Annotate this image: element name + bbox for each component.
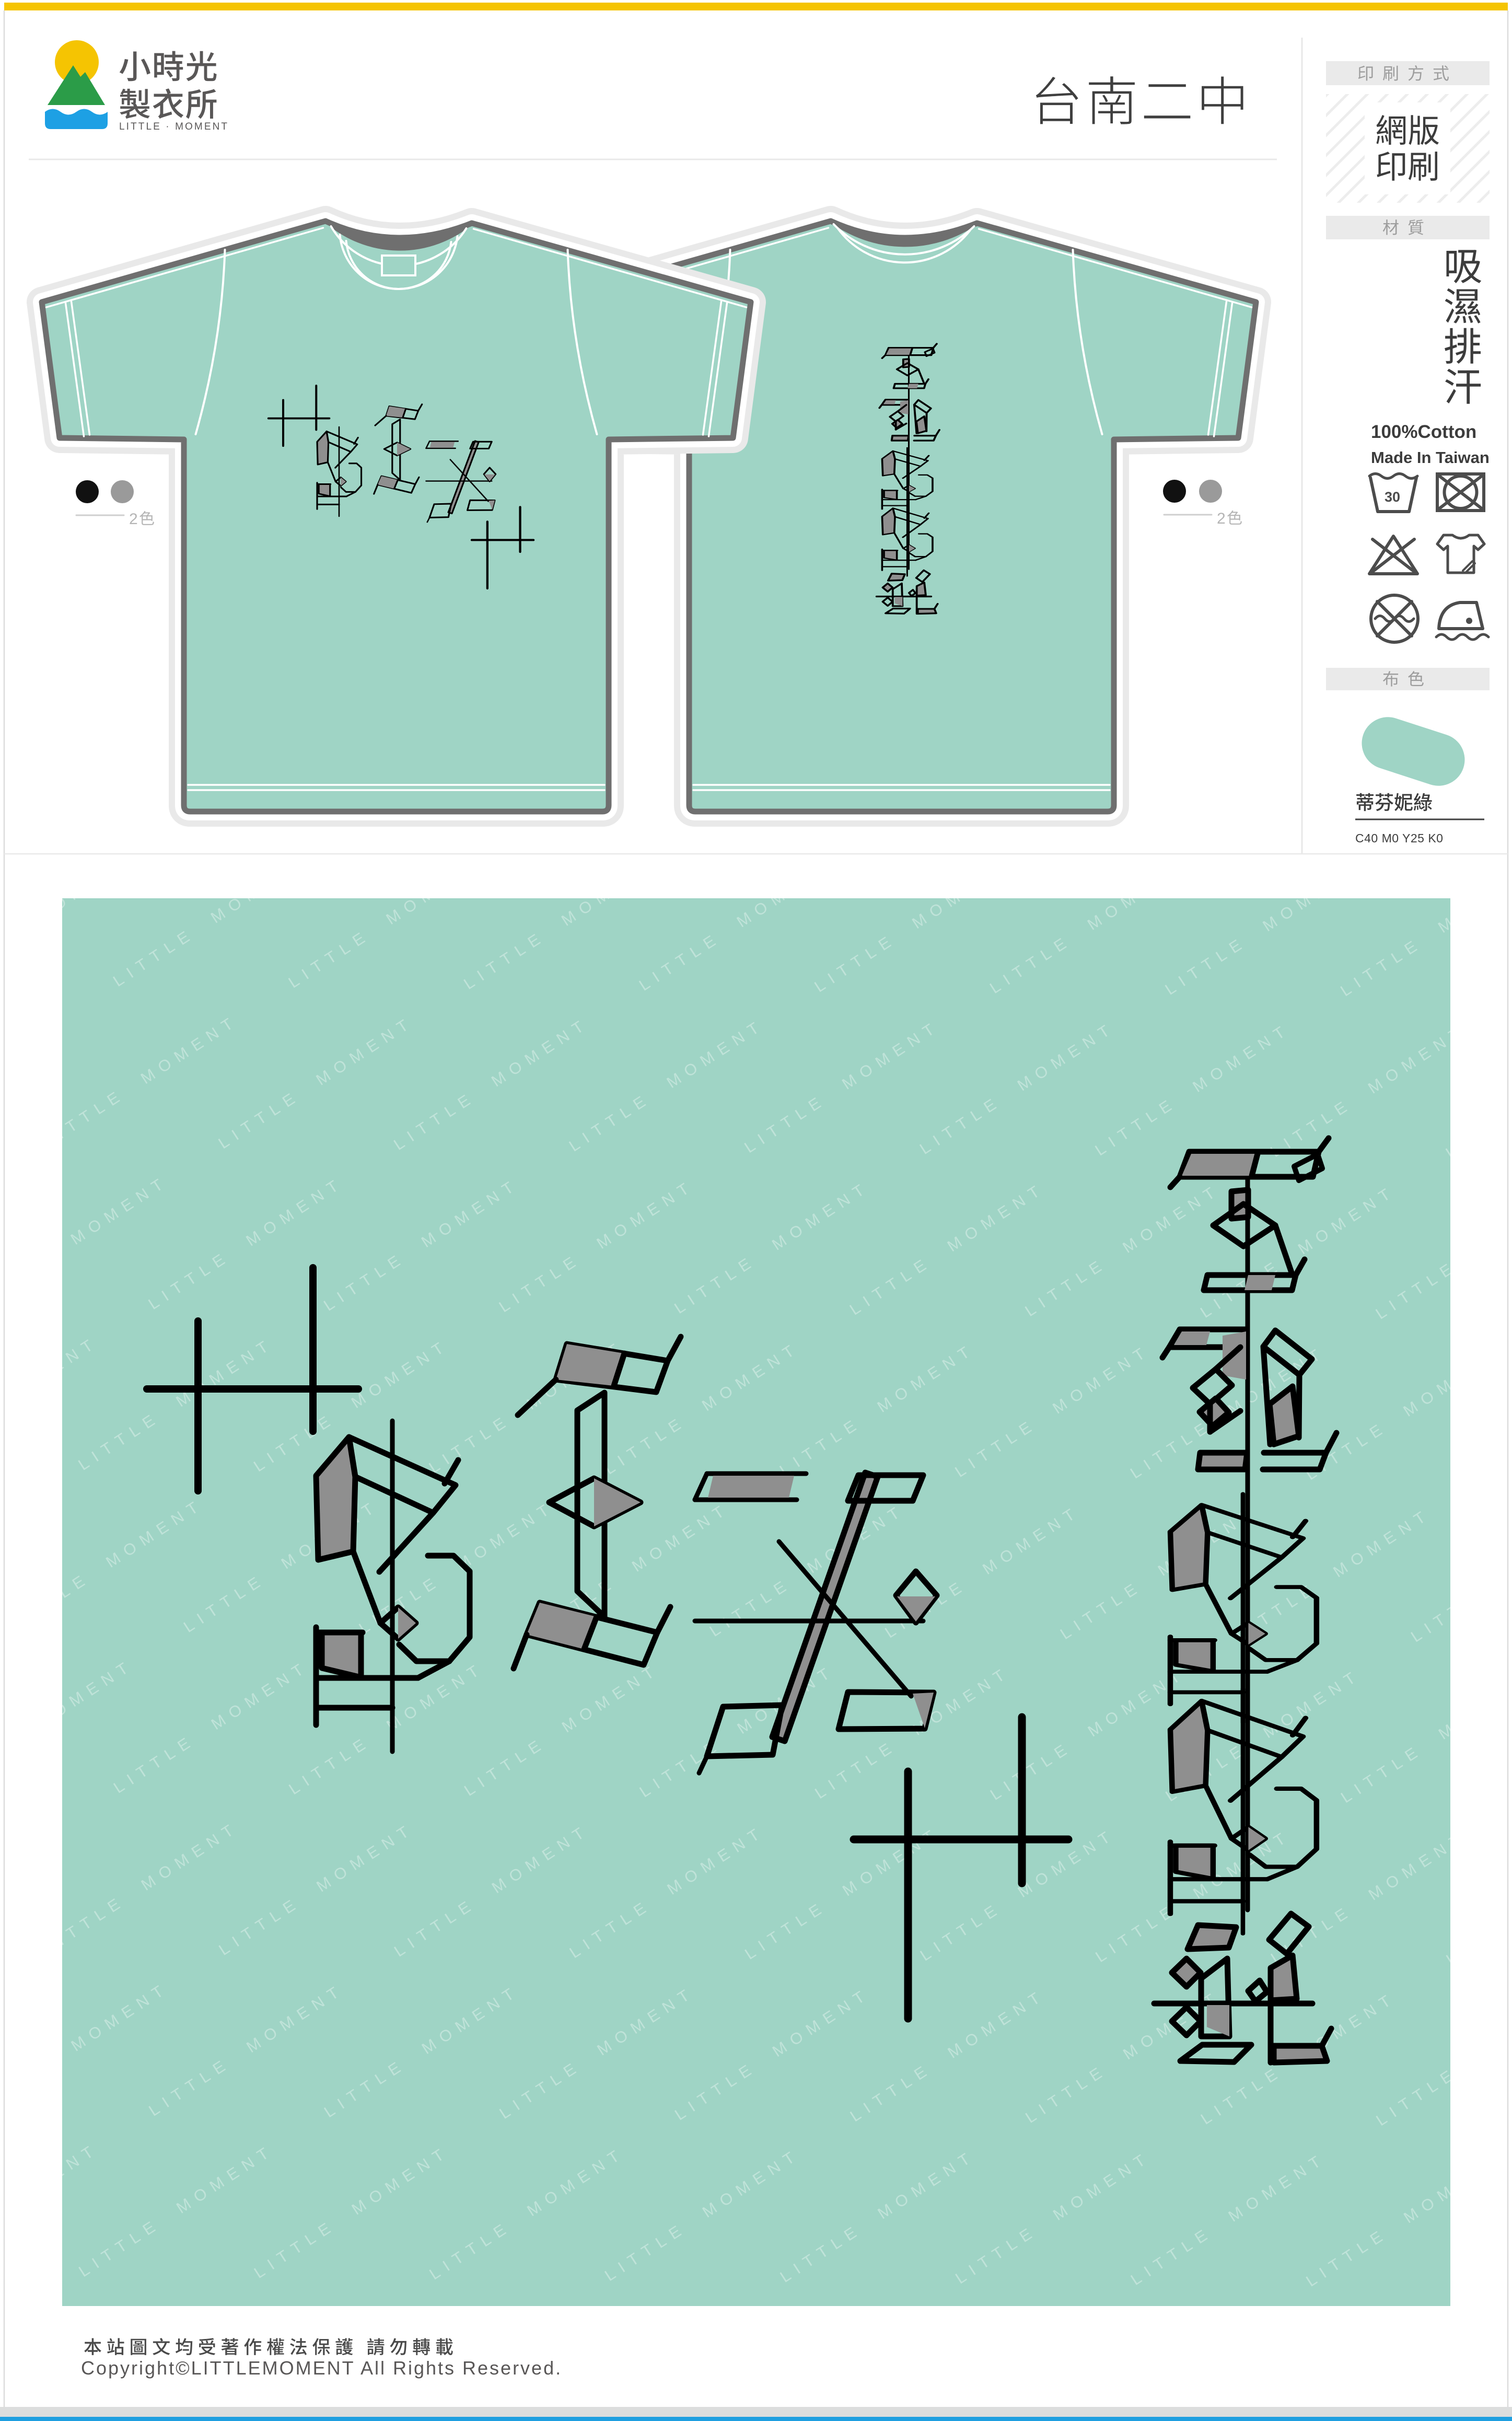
svg-text:30: 30 bbox=[1385, 489, 1400, 505]
svg-text:Copyright©LITTLEMOMENT All Rig: Copyright©LITTLEMOMENT All Rights Reserv… bbox=[81, 2357, 562, 2379]
svg-text:Made In Taiwan: Made In Taiwan bbox=[1371, 448, 1490, 467]
svg-text:2: 2 bbox=[129, 511, 138, 528]
svg-text:2: 2 bbox=[1217, 510, 1226, 527]
svg-text:C40 M0 Y25 K0: C40 M0 Y25 K0 bbox=[1355, 831, 1443, 845]
svg-text:100%Cotton: 100%Cotton bbox=[1371, 422, 1476, 442]
svg-text:LITTLE · MOMENT: LITTLE · MOMENT bbox=[119, 121, 229, 132]
